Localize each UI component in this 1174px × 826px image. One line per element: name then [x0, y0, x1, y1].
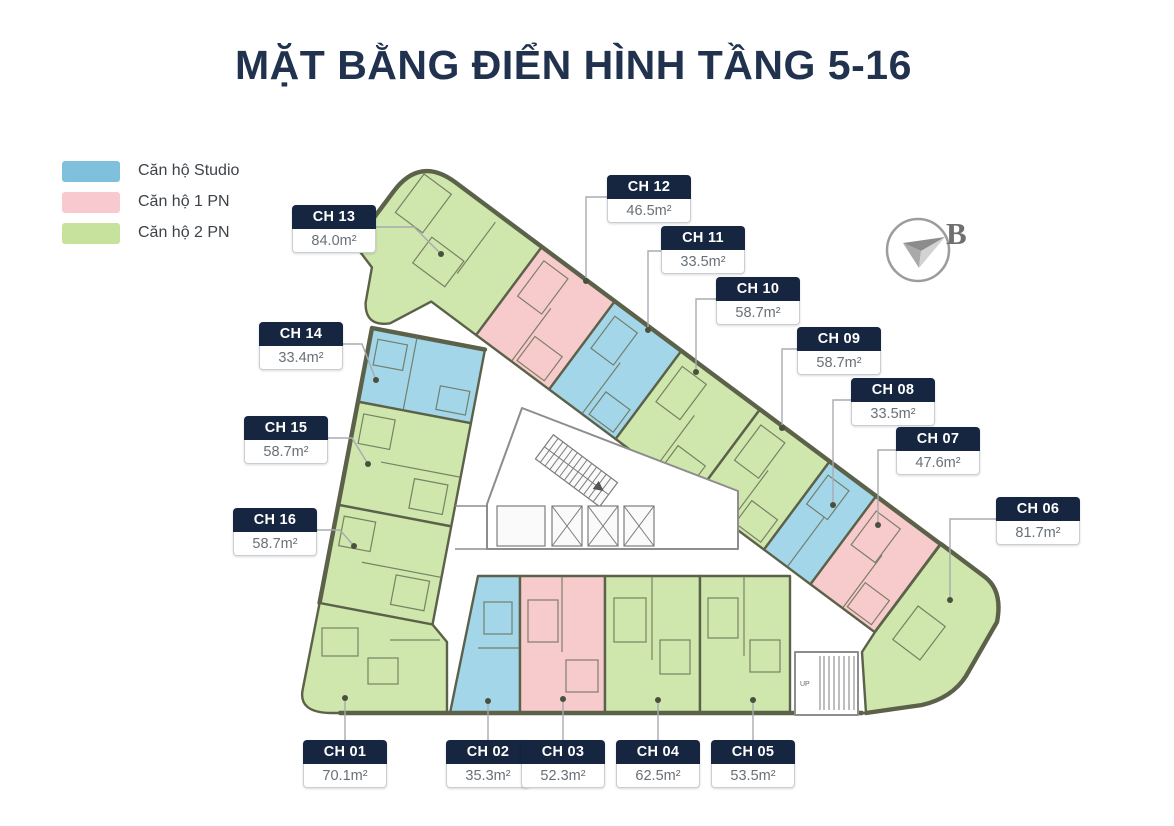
compass-label: B [946, 216, 967, 251]
unit-label-ch11: CH 11 33.5m² [661, 226, 745, 274]
stair-block: UP [795, 652, 858, 715]
unit-label-ch14: CH 14 33.4m² [259, 322, 343, 370]
unit-id: CH 09 [797, 327, 881, 351]
unit-id: CH 13 [292, 205, 376, 229]
unit-label-ch02: CH 02 35.3m² [446, 740, 530, 788]
legend-item-1pn: Căn hộ 1 PN [62, 191, 239, 213]
leader-ch11 [648, 251, 661, 330]
left-wing [320, 328, 485, 625]
unit-id: CH 10 [716, 277, 800, 301]
unit-area: 33.5m² [851, 402, 935, 427]
unit-id: CH 07 [896, 427, 980, 451]
unit-label-ch07: CH 07 47.6m² [896, 427, 980, 475]
unit-id: CH 15 [244, 416, 328, 440]
unit-label-ch10: CH 10 58.7m² [716, 277, 800, 325]
up-label: UP [800, 681, 810, 688]
unit-id: CH 04 [616, 740, 700, 764]
page-title: MẶT BẰNG ĐIỂN HÌNH TẦNG 5-16 [235, 42, 885, 89]
unit-id: CH 08 [851, 378, 935, 402]
legend-item-studio: Căn hộ Studio [62, 160, 239, 182]
unit-label-ch06: CH 06 81.7m² [996, 497, 1080, 545]
unit-area: 33.4m² [259, 346, 343, 371]
floor-plan-page: UP [0, 0, 1174, 826]
unit-id: CH 01 [303, 740, 387, 764]
unit-label-ch09: CH 09 58.7m² [797, 327, 881, 375]
unit-area: 58.7m² [716, 301, 800, 326]
unit-area: 62.5m² [616, 764, 700, 789]
leader-ch10 [696, 299, 716, 372]
unit-id: CH 14 [259, 322, 343, 346]
unit-area: 58.7m² [244, 440, 328, 465]
north-arrow-icon [903, 237, 945, 268]
legend-swatch-1pn [62, 192, 120, 213]
legend-label: Căn hộ Studio [138, 162, 239, 180]
unit-area: 53.5m² [711, 764, 795, 789]
unit-region-ch02 [450, 576, 520, 713]
elevator-icon [624, 506, 654, 546]
unit-id: CH 12 [607, 175, 691, 199]
floor-plan-drawing: UP [0, 0, 1174, 826]
unit-area: 58.7m² [233, 532, 317, 557]
legend-item-2pn: Căn hộ 2 PN [62, 222, 239, 244]
unit-label-ch03: CH 03 52.3m² [521, 740, 605, 788]
unit-id: CH 02 [446, 740, 530, 764]
unit-id: CH 11 [661, 226, 745, 250]
elevator-icon [588, 506, 618, 546]
unit-label-ch12: CH 12 46.5m² [607, 175, 691, 223]
unit-area: 58.7m² [797, 351, 881, 376]
unit-label-ch04: CH 04 62.5m² [616, 740, 700, 788]
legend: Căn hộ Studio Căn hộ 1 PN Căn hộ 2 PN [62, 160, 239, 253]
unit-area: 35.3m² [446, 764, 530, 789]
leader-ch09 [782, 349, 797, 428]
unit-id: CH 06 [996, 497, 1080, 521]
legend-swatch-studio [62, 161, 120, 182]
unit-label-ch08: CH 08 33.5m² [851, 378, 935, 426]
unit-region-ch05 [700, 576, 790, 713]
unit-area: 33.5m² [661, 250, 745, 275]
unit-area: 46.5m² [607, 199, 691, 224]
unit-label-ch01: CH 01 70.1m² [303, 740, 387, 788]
unit-label-ch16: CH 16 58.7m² [233, 508, 317, 556]
core-lobby [497, 506, 545, 546]
core-corridor-lines [455, 506, 487, 549]
unit-label-ch13: CH 13 84.0m² [292, 205, 376, 253]
unit-id: CH 05 [711, 740, 795, 764]
unit-area: 81.7m² [996, 521, 1080, 546]
legend-label: Căn hộ 2 PN [138, 224, 230, 242]
legend-swatch-2pn [62, 223, 120, 244]
unit-label-ch15: CH 15 58.7m² [244, 416, 328, 464]
unit-area: 70.1m² [303, 764, 387, 789]
unit-label-ch05: CH 05 53.5m² [711, 740, 795, 788]
leader-ch12 [586, 197, 607, 281]
unit-area: 84.0m² [292, 229, 376, 254]
unit-area: 52.3m² [521, 764, 605, 789]
compass: B [887, 216, 967, 281]
unit-id: CH 16 [233, 508, 317, 532]
unit-id: CH 03 [521, 740, 605, 764]
unit-area: 47.6m² [896, 451, 980, 476]
elevator-icon [552, 506, 582, 546]
legend-label: Căn hộ 1 PN [138, 193, 230, 211]
